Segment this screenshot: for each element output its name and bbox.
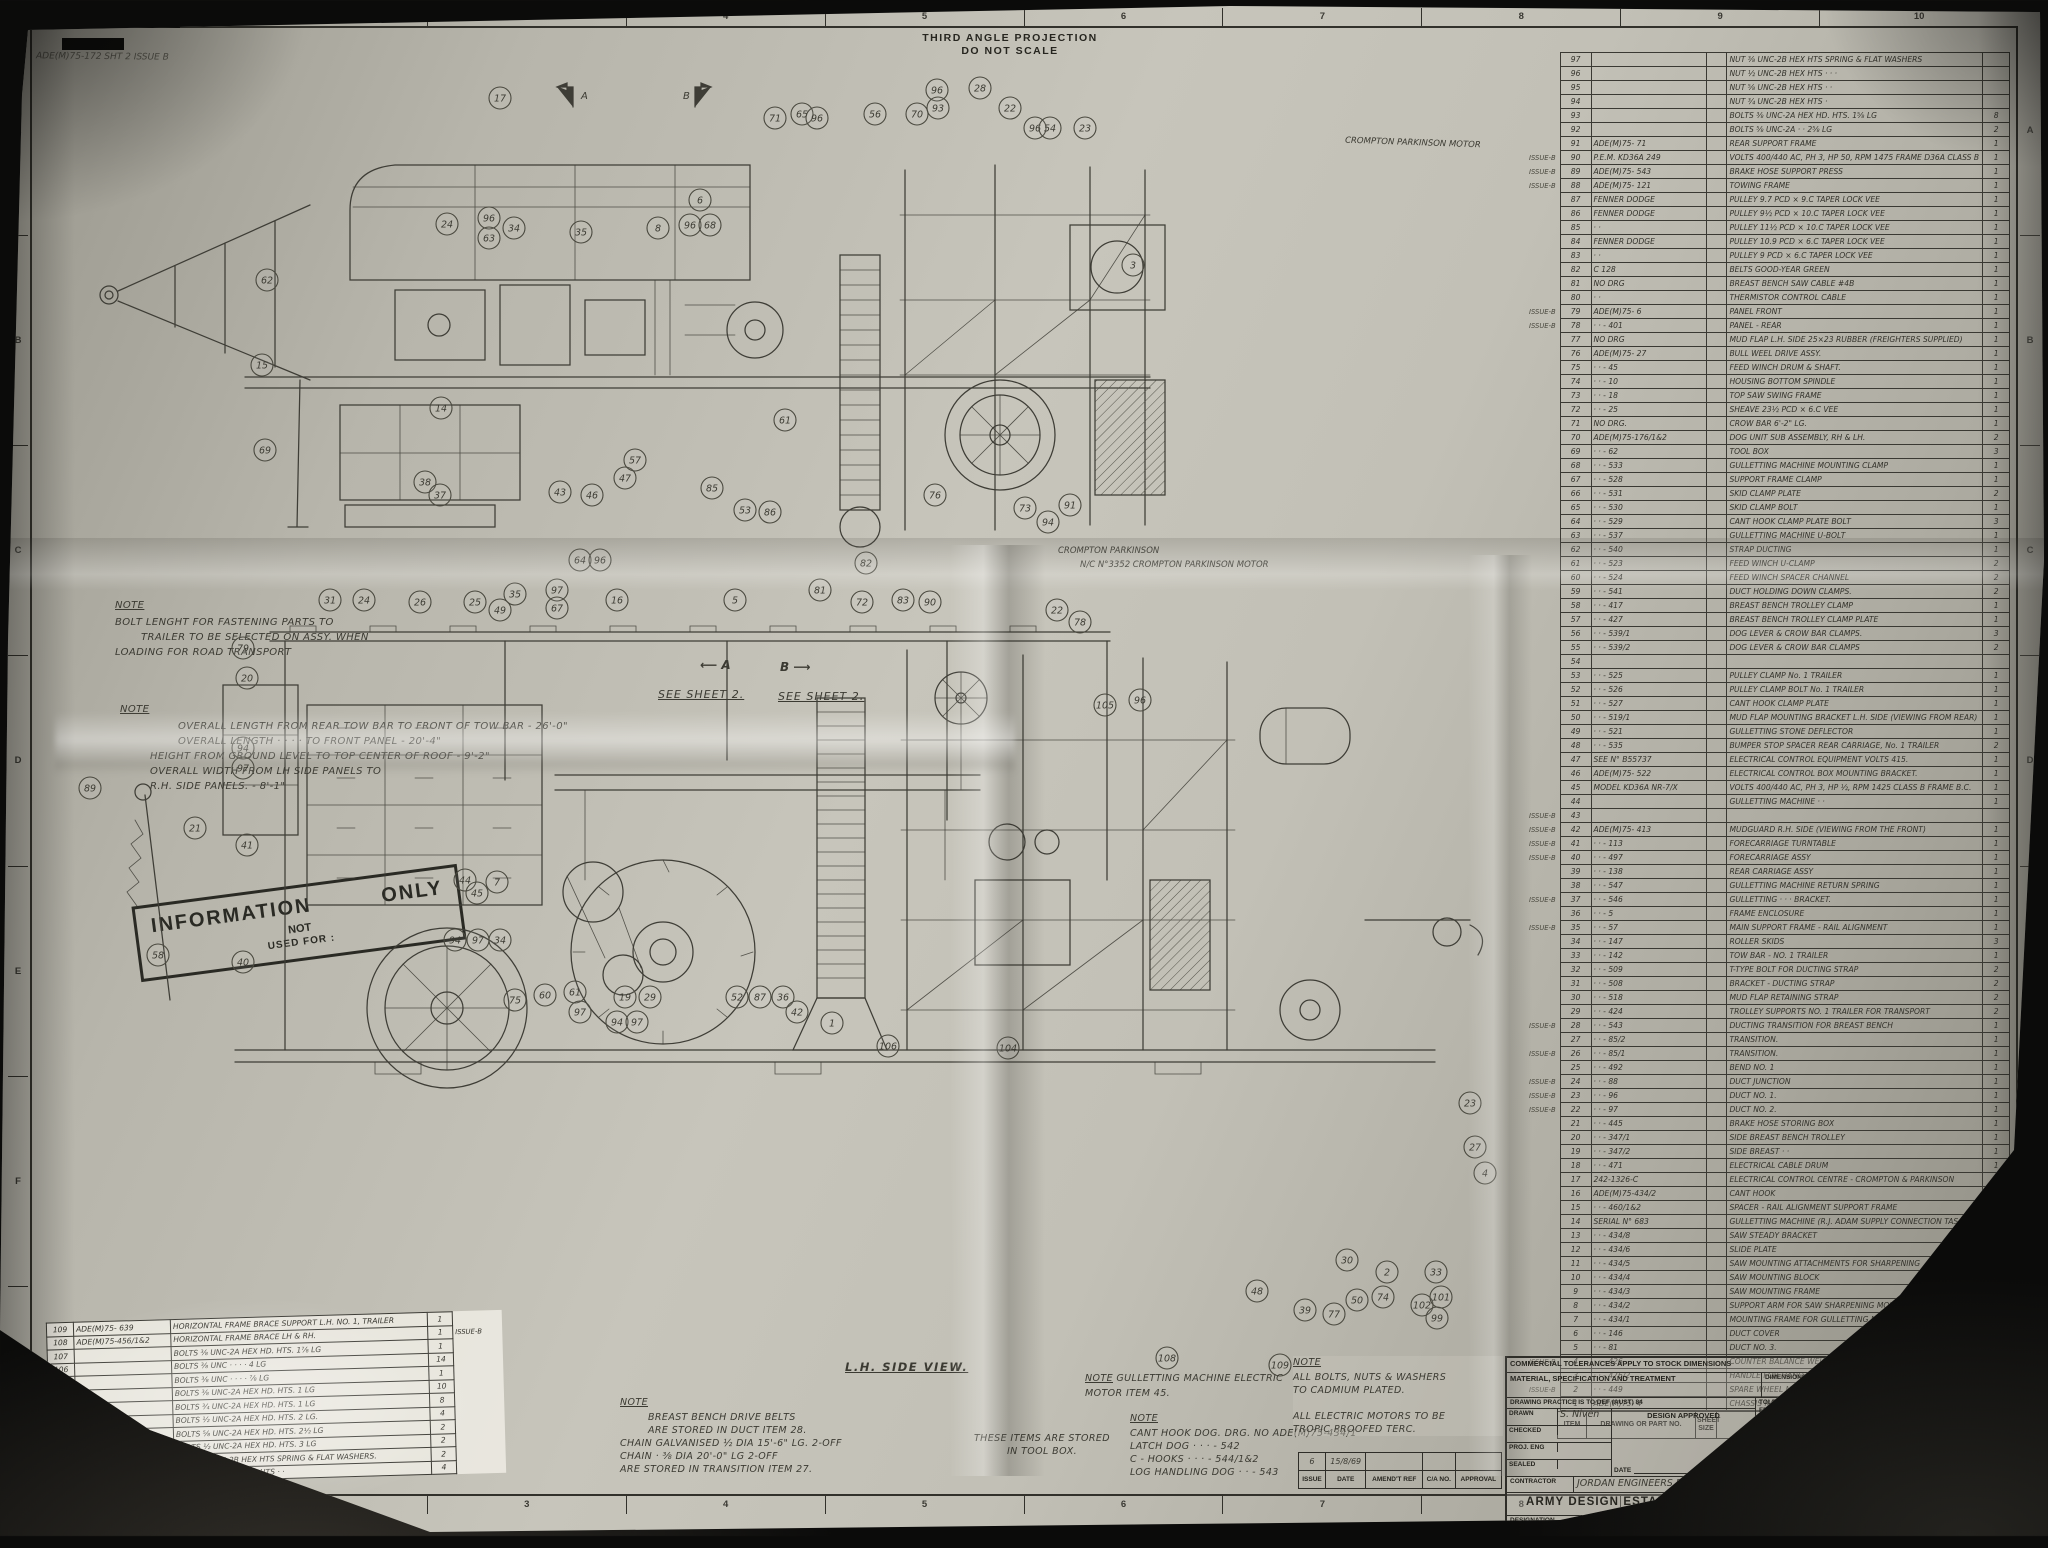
callout-balloon-number: 46	[586, 490, 598, 501]
parts-row: 91ADE(M)75- 71REAR SUPPORT FRAME1	[1505, 137, 2010, 151]
material-spec-label: MATERIAL, SPECIFICATION AND TREATMENT	[1507, 1373, 1761, 1397]
parts-row: ISSUE-B79ADE(M)75- 6PANEL FRONT1	[1505, 305, 2010, 319]
border-coordinate-label: C	[8, 445, 28, 655]
border-coordinate-label: D	[8, 655, 28, 865]
callout-balloon-number: 67	[551, 603, 563, 614]
parts-row: 13· · - 434/8SAW STEADY BRACKET1	[1505, 1229, 2010, 1243]
parts-list-continuation: 109ADE(M)75- 639HORIZONTAL FRAME BRACE S…	[46, 1309, 520, 1485]
parts-row: 62· · - 540STRAP DUCTING1	[1505, 543, 2010, 557]
border-coordinate-label: 10	[1819, 8, 2018, 26]
parts-row: 57· · - 427BREAST BENCH TROLLEY CLAMP PL…	[1505, 613, 2010, 627]
border-coordinate-label: 10	[1819, 1496, 2018, 1514]
callout-balloon-number: 71	[769, 113, 781, 124]
border-coordinate-label: 5	[825, 1496, 1024, 1514]
callout-balloon-number: 63	[483, 233, 495, 244]
proj-eng-label: PROJ. ENG	[1507, 1443, 1558, 1453]
crompton-parkinson-label: CROMPTON PARKINSON	[1058, 546, 1159, 556]
border-coordinate-label: 3	[427, 8, 626, 26]
parts-row: ISSUE-B89ADE(M)75- 543BRAKE HOSE SUPPORT…	[1505, 165, 2010, 179]
callout-balloon-number: 53	[739, 505, 751, 516]
parts-row: 74· · - 10HOUSING BOTTOM SPINDLE1	[1505, 375, 2010, 389]
parts-row: 25· · - 492BEND NO. 11	[1505, 1061, 2010, 1075]
drawing-no-label: DRAWING NO.	[1828, 1517, 2009, 1525]
callout-balloon-number: 101	[1432, 1292, 1450, 1303]
parts-row: 21· · - 445BRAKE HOSE STORING BOX1	[1505, 1117, 2010, 1131]
callout-balloon-number: 74	[1377, 1292, 1389, 1303]
callout-balloon-number: 108	[1158, 1353, 1176, 1364]
parts-row: 55· · - 539/2DOG LEVER & CROW BAR CLAMPS…	[1505, 641, 2010, 655]
parts-row: 6· · - 146DUCT COVER1	[1505, 1327, 2010, 1341]
border-ruler-bottom: 12345678910	[30, 1496, 2018, 1514]
parts-row: 54	[1505, 655, 2010, 669]
callout-balloon-number: 99	[1431, 1313, 1443, 1324]
callout-balloon-number: 30	[1341, 1255, 1353, 1266]
parts-row: 51· · - 527CANT HOOK CLAMP PLATE1	[1505, 697, 2010, 711]
parts-row: 34· · - 147ROLLER SKIDS3	[1505, 935, 2010, 949]
callout-balloon-number: 96	[1134, 695, 1146, 706]
callout-balloon-number: 43	[554, 487, 566, 498]
parts-row: 80· ·THERMISTOR CONTROL CABLE1	[1505, 291, 2010, 305]
callout-balloon-number: 97	[237, 763, 249, 774]
contractor-label: CONTRACTOR	[1507, 1477, 1573, 1492]
parts-list-table: 97NUT ⅜ UNC-2B HEX HTS SPRING & FLAT WAS…	[1505, 52, 2010, 1411]
parts-row: 36· · - 5FRAME ENCLOSURE1	[1505, 907, 2010, 921]
sealed-label: SEALED	[1507, 1460, 1558, 1470]
est-wt-label: EST. WT.	[1921, 1409, 2012, 1420]
callout-balloon-number: 97	[551, 585, 563, 596]
callout-balloon-number: 21	[189, 823, 201, 834]
callout-balloon-number: 91	[1064, 500, 1076, 511]
callout-balloon-number: 79	[237, 643, 249, 654]
callout-balloon-number: 35	[575, 227, 587, 238]
parts-row: 38· · - 547GULLETTING MACHINE RETURN SPR…	[1505, 879, 2010, 893]
lower-view-callout-balloons: 3124262549359767165817283902278792010596…	[79, 579, 1496, 1376]
callout-balloon-number: 39	[1299, 1305, 1311, 1316]
parts-row: 92BOLTS ⅝ UNC-2A · · 2⅝ LG2	[1505, 123, 2010, 137]
border-coordinate-label: G	[8, 1286, 28, 1496]
callout-balloon-number: 26	[414, 597, 426, 608]
border-coordinate-label: A	[8, 26, 28, 235]
border-coordinate-label: 4	[626, 1496, 825, 1514]
callout-balloon-number: 15	[256, 360, 268, 371]
callout-balloon-number: 105	[1096, 700, 1114, 711]
parts-row: 18· · - 471ELECTRICAL CABLE DRUM1	[1505, 1159, 2010, 1173]
parts-row: ISSUE-B41· · - 113FORECARRIAGE TURNTABLE…	[1505, 837, 2010, 851]
parts-row: ISSUE-B40· · - 497FORECARRIAGE ASSY1	[1505, 851, 2010, 865]
note-cadmium-plating: NOTE ALL BOLTS, NUTS & WASHERS TO CADMIU…	[1293, 1356, 1503, 1436]
callout-balloon-number: 64	[574, 555, 586, 566]
border-coordinate-label: 5	[825, 8, 1024, 26]
callout-balloon-number: 1	[829, 1018, 835, 1029]
callout-balloon-number: 57	[629, 455, 641, 466]
issue-strip-headers: ISSUE DATE AMEND'T REF C/A NO. APPROVAL	[1299, 1471, 1502, 1489]
border-coordinate-label: 7	[1222, 8, 1421, 26]
parts-row: 56· · - 539/1DOG LEVER & CROW BAR CLAMPS…	[1505, 627, 2010, 641]
border-rail-left: ABCDEFG	[8, 26, 28, 1496]
tolerances-title: TOLERANCES UNLESS OTHERWISE STATED	[1759, 1399, 1917, 1407]
parts-row: ISSUE-B24· · - 88DUCT JUNCTION1	[1505, 1075, 2010, 1089]
callout-balloon-number: 29	[644, 992, 656, 1003]
callout-balloon-number: 27	[1469, 1142, 1481, 1153]
parts-row: 77NO DRGMUD FLAP L.H. SIDE 25×23 RUBBER …	[1505, 333, 2010, 347]
design-approved-label: DESIGN APPROVED	[1614, 1411, 1753, 1420]
callout-balloon-number: 96	[811, 113, 823, 124]
parts-list-continuation-table: 109ADE(M)75- 639HORIZONTAL FRAME BRACE S…	[46, 1310, 506, 1486]
section-marker-b-top: B	[683, 91, 690, 102]
parts-row: 66· · - 531SKID CLAMP PLATE2	[1505, 487, 2010, 501]
section-marker-a-top: A	[580, 91, 588, 102]
callout-balloon-number: 94	[1042, 517, 1054, 528]
callout-balloon-number: 90	[924, 597, 936, 608]
callout-balloon-number: 22	[1004, 103, 1016, 114]
parts-row: 69· · - 62TOOL BOX3	[1505, 445, 2010, 459]
callout-balloon-number: 70	[911, 109, 923, 120]
callout-balloon-number: 47	[619, 473, 631, 484]
tolerance-fractional: FRACTIONAL ±	[1759, 1407, 1917, 1415]
callout-balloon-number: 83	[897, 595, 909, 606]
border-coordinate-label: 8	[1421, 8, 1620, 26]
callout-balloon-number: 28	[974, 83, 986, 94]
parts-row: 76ADE(M)75- 27BULL WEEL DRIVE ASSY.1	[1505, 347, 2010, 361]
border-coordinate-label: E	[8, 866, 28, 1076]
border-coordinate-label: 1	[30, 1496, 228, 1514]
parts-row: 82C 128BELTS GOOD-YEAR GREEN1	[1505, 263, 2010, 277]
sheet-box-nos: NOS.	[1975, 1504, 2009, 1512]
issue-strip: 6 15/8/69 ISSUE DATE AMEND'T REF C/A NO.…	[1298, 1452, 1502, 1489]
sheet-box-number: 2	[1975, 1494, 2009, 1504]
parts-row: 67· · - 528SUPPORT FRAME CLAMP1	[1505, 473, 2010, 487]
callout-balloon-number: 94	[449, 935, 461, 946]
callout-balloon-number: 4	[1482, 1168, 1488, 1179]
callout-balloon-number: 34	[508, 223, 520, 234]
border-rail-right: ABCDEFG	[2020, 26, 2040, 1496]
organisation-banner: ARMY DESIGN ESTABLISHMENT, AUSTRALIAN MI…	[1507, 1493, 1971, 1511]
callout-balloon-number: 16	[611, 595, 623, 606]
parts-row: 72· · - 25SHEAVE 23½ PCD × 6.C VEE1	[1505, 403, 2010, 417]
tolerance-2place: 2 PLACE DECIMALS ±	[1759, 1422, 1917, 1430]
callout-balloon-number: 96	[684, 220, 696, 231]
callout-balloon-number: 87	[754, 992, 766, 1003]
parts-row: 46ADE(M)75- 522ELECTRICAL CONTROL BOX MO…	[1505, 767, 2010, 781]
border-coordinate-label: C	[2020, 445, 2040, 655]
callout-balloon-number: 106	[879, 1041, 897, 1052]
border-coordinate-label: 9	[1620, 8, 1819, 26]
border-coordinate-label: E	[2020, 866, 2040, 1076]
parts-row: 47SEE N° B55737ELECTRICAL CONTROL EQUIPM…	[1505, 753, 2010, 767]
border-coordinate-label: 2	[228, 1496, 427, 1514]
parts-row: 94NUT ¾ UNC-2B HEX HTS ·	[1505, 95, 2010, 109]
parts-row: 65· · - 530SKID CLAMP BOLT1	[1505, 501, 2010, 515]
drawing-no-value: ADE(M)75-172 SHT 1	[1828, 1525, 2009, 1536]
callout-balloon-number: 69	[259, 445, 271, 456]
callout-balloon-number: 89	[84, 783, 96, 794]
parts-row: 85· ·PULLEY 11½ PCD × 10.C TAPER LOCK VE…	[1505, 221, 2010, 235]
callout-balloon-number: 78	[1074, 617, 1086, 628]
lh-side-view-label: L.H. SIDE VIEW.	[845, 1360, 968, 1374]
callout-balloon-number: 61	[569, 987, 581, 998]
projection-note-line2: DO NOT SCALE	[890, 45, 1130, 58]
tolerance-3place: 3 PLACE DECIMALS ±	[1759, 1429, 1917, 1437]
parts-row: 63· · - 537GULLETTING MACHINE U-BOLT1	[1505, 529, 2010, 543]
callout-balloon-number: 96	[931, 85, 943, 96]
checked-label: CHECKED	[1507, 1426, 1558, 1436]
parts-row: 32· · - 509T-TYPE BOLT FOR DUCTING STRAP…	[1505, 963, 2010, 977]
callout-balloon-number: 62	[261, 275, 273, 286]
callout-balloon-number: 97	[472, 935, 484, 946]
parts-row: 83· ·PULLEY 9 PCD × 6.C TAPER LOCK VEE1	[1505, 249, 2010, 263]
callout-balloon-number: 97	[574, 1007, 586, 1018]
callout-balloon-number: 58	[152, 950, 164, 961]
border-coordinate-label: 2	[228, 8, 427, 26]
parts-row: 84FENNER DODGEPULLEY 10.9 PCD × 6.C TAPE…	[1505, 235, 2010, 249]
border-coordinate-label: B	[2020, 235, 2040, 445]
callout-balloon-number: 2	[1384, 1267, 1390, 1278]
parts-row: 81NO DRGBREAST BENCH SAW CABLE #4B1	[1505, 277, 2010, 291]
callout-balloon-number: 56	[869, 109, 881, 120]
callout-balloon-number: 37	[434, 490, 446, 501]
parts-row: 48· · - 535BUMPER STOP SPACER REAR CARRI…	[1505, 739, 2010, 753]
parts-row: 59· · - 541DUCT HOLDING DOWN CLAMPS.2	[1505, 585, 2010, 599]
callout-balloon-number: 45	[471, 888, 483, 899]
parts-row: 15· · - 460/1&2SPACER - RAIL ALIGNMENT S…	[1505, 1201, 2010, 1215]
parts-row: ISSUE-B88ADE(M)75- 121TOWING FRAME1	[1505, 179, 2010, 193]
note-gulletting-motor: NOTE GULLETTING MACHINE ELECTRIC MOTOR I…	[1085, 1372, 1325, 1400]
border-coordinate-label: 6	[1024, 1496, 1223, 1514]
projection-note: THIRD ANGLE PROJECTION DO NOT SCALE	[890, 32, 1130, 58]
callout-balloon-number: 24	[358, 595, 370, 606]
parts-row: 39· · - 138REAR CARRIAGE ASSY1	[1505, 865, 2010, 879]
callout-balloon-number: 6	[697, 195, 703, 206]
border-coordinate-label: 7	[1222, 1496, 1421, 1514]
callout-balloon-number: 31	[324, 595, 336, 606]
parts-row: 44GULLETTING MACHINE · ·1	[1505, 795, 2010, 809]
parts-row: 17242-1326-CELECTRICAL CONTROL CENTRE - …	[1505, 1173, 2010, 1187]
parts-row: 5· · - 81DUCT NO. 3.1	[1505, 1341, 2010, 1355]
border-coordinate-label: 6	[1024, 8, 1223, 26]
parts-row: 71NO DRG.CROW BAR 6'-2" LG.1	[1505, 417, 2010, 431]
parts-row: 20· · - 347/1SIDE BREAST BENCH TROLLEY1	[1505, 1131, 2010, 1145]
callout-balloon-number: 50	[1351, 1295, 1363, 1306]
callout-balloon-number: 96	[594, 555, 606, 566]
callout-balloon-number: 82	[860, 558, 872, 569]
parts-row: 96NUT ½ UNC-2B HEX HTS · · ·	[1505, 67, 2010, 81]
parts-row: 53· · - 525PULLEY CLAMP No. 1 TRAILER1	[1505, 669, 2010, 683]
callout-balloon-number: 24	[441, 219, 453, 230]
border-coordinate-label: G	[2020, 1286, 2040, 1496]
parts-row: 27· · - 85/2TRANSITION.1	[1505, 1033, 2010, 1047]
border-coordinate-label: B	[8, 235, 28, 445]
drawn-label: DRAWN	[1507, 1409, 1558, 1425]
parts-row: 49· · - 521GULLETTING STONE DEFLECTOR1	[1505, 725, 2010, 739]
callout-balloon-number: 102	[1413, 1300, 1431, 1311]
callout-balloon-number: 3	[1130, 260, 1136, 271]
callout-balloon-number: 42	[791, 1007, 803, 1018]
callout-balloon-number: 23	[1079, 123, 1091, 134]
border-coordinate-label: D	[2020, 655, 2040, 865]
parts-row: 60· · - 524FEED WINCH SPACER CHANNEL2	[1505, 571, 2010, 585]
designation-label: DESIGNATION	[1510, 1517, 1768, 1525]
parts-row: 70ADE(M)75-176/1&2DOG UNIT SUB ASSEMBLY,…	[1505, 431, 2010, 445]
drawing-practice-note: DRAWING PRACTICE IS TO DEF (AUST) 84	[1507, 1398, 1755, 1409]
parts-row: 10· · - 434/4SAW MOUNTING BLOCK1	[1505, 1271, 2010, 1285]
parts-row: ISSUE-B90P.E.M. KD36A 249VOLTS 400/440 A…	[1505, 151, 2010, 165]
parts-row: 68· · - 533GULLETTING MACHINE MOUNTING C…	[1505, 459, 2010, 473]
callout-balloon-number: 104	[999, 1043, 1017, 1054]
parts-row: 12· · - 434/6SLIDE PLATE1	[1505, 1243, 2010, 1257]
parts-row: 33· · - 142TOW BAR - NO. 1 TRAILER1	[1505, 949, 2010, 963]
nc-motor-number-label: N/C N°3352 CROMPTON PARKINSON MOTOR	[1080, 560, 1269, 570]
callout-balloon-number: 25	[469, 597, 481, 608]
parts-row: 73· · - 18TOP SAW SWING FRAME1	[1505, 389, 2010, 403]
parts-row: ISSUE-B22· · - 97DUCT NO. 2.1	[1505, 1103, 2010, 1117]
parts-row: 97NUT ⅜ UNC-2B HEX HTS SPRING & FLAT WAS…	[1505, 53, 2010, 67]
parts-list: 97NUT ⅜ UNC-2B HEX HTS SPRING & FLAT WAS…	[1505, 52, 2010, 1439]
parts-row: 31· · - 508BRACKET - DUCTING STRAP2	[1505, 977, 2010, 991]
callout-balloon-number: 17	[494, 93, 506, 104]
parts-row: ISSUE-B43	[1505, 809, 2010, 823]
callout-balloon-number: 35	[509, 589, 521, 600]
callout-balloon-number: 38	[419, 477, 431, 488]
callout-balloon-number: 20	[241, 673, 253, 684]
border-ruler-top: 12345678910	[30, 8, 2018, 26]
border-coordinate-label: A	[2020, 26, 2040, 235]
callout-balloon-number: 23	[1464, 1098, 1476, 1109]
parts-row: 19· · - 347/2SIDE BREAST · ·1	[1505, 1145, 2010, 1159]
parts-row: 50· · - 519/1MUD FLAP MOUNTING BRACKET L…	[1505, 711, 2010, 725]
callout-balloon-number: 72	[856, 597, 868, 608]
callout-balloon-number: 33	[1430, 1267, 1442, 1278]
parts-row: 86FENNER DODGEPULLEY 9½ PCD × 10.C TAPER…	[1505, 207, 2010, 221]
callout-balloon-number: 77	[1328, 1309, 1340, 1320]
callout-balloon-number: 94	[611, 1017, 623, 1028]
callout-balloon-number: 54	[1044, 123, 1056, 134]
parts-row: 95NUT ⅝ UNC-2B HEX HTS · ·	[1505, 81, 2010, 95]
parts-row: 52· · - 526PULLEY CLAMP BOLT No. 1 TRAIL…	[1505, 683, 2010, 697]
parts-row: 45MODEL KD36A NR-7/XVOLTS 400/440 AC, PH…	[1505, 781, 2010, 795]
callout-balloon-number: 14	[435, 403, 447, 414]
issue-strip-values: 6 15/8/69	[1299, 1453, 1502, 1471]
parts-row: 61· · - 523FEED WINCH U-CLAMP2	[1505, 557, 2010, 571]
title-block: COMMERCIAL TOLERANCES APPLY TO STOCK DIM…	[1505, 1356, 2014, 1548]
parts-row: 75· · - 45FEED WINCH DRUM & SHAFT.1	[1505, 361, 2010, 375]
dp-no-label: D.P. NO.	[1921, 1398, 2012, 1409]
callout-balloon-number: 73	[1019, 503, 1031, 514]
tolerance-angular: ANGULAR ±	[1759, 1414, 1917, 1422]
parts-row: 93BOLTS ⅜ UNC-2A HEX HD. HTS. 1⅝ LG8	[1505, 109, 2010, 123]
parts-row: ISSUE-B23· · - 96DUCT NO. 1.1	[1505, 1089, 2010, 1103]
callout-balloon-number: 75	[509, 995, 521, 1006]
commercial-tolerances-note: COMMERCIAL TOLERANCES APPLY TO STOCK DIM…	[1507, 1358, 2012, 1372]
date-label: DATE	[1614, 1467, 1631, 1475]
border-coordinate-label: F	[2020, 1076, 2040, 1286]
callout-balloon-number: 34	[494, 935, 506, 946]
callout-balloon-number: 40	[237, 957, 249, 968]
callout-balloon-number: 49	[494, 605, 506, 616]
parts-row: 16ADE(M)75-434/2CANT HOOK2	[1505, 1187, 2010, 1201]
contractor-value: JORDAN ENGINEERS PTY. LTD. HOBART TAS.	[1573, 1477, 2012, 1492]
callout-balloon-number: 76	[929, 490, 941, 501]
parts-row: 8· · - 434/2SUPPORT ARM FOR SAW SHARPENI…	[1505, 1299, 2010, 1313]
defence-stock-no-label: DEFENCE STOCK NO.	[1926, 1373, 2012, 1397]
scale-value: 1/12	[1775, 1525, 1821, 1536]
callout-balloon-number: 5	[732, 595, 738, 606]
callout-balloon-number: 81	[814, 585, 826, 596]
parts-row: ISSUE-B78· · - 401PANEL - REAR1	[1505, 319, 2010, 333]
callout-balloon-number: 96	[483, 213, 495, 224]
callout-balloon-number: 41	[241, 840, 253, 851]
callout-balloon-number: 36	[777, 992, 789, 1003]
parts-row: ISSUE-B26· · - 85/1TRANSITION.1	[1505, 1047, 2010, 1061]
callout-balloon-number: 109	[1271, 1360, 1289, 1371]
contractors-dwg-no-label: CONTRACTOR'S DWG. NO.	[1921, 1419, 2012, 1476]
for-cgm-label: for CGM	[1727, 1467, 1753, 1475]
parts-row: ISSUE-B35· · - 57MAIN SUPPORT FRAME - RA…	[1505, 921, 2010, 935]
callout-balloon-number: 8	[655, 223, 661, 234]
lower-trailer-side-view-drawing: 3124262549359767165817283902278792010596…	[75, 580, 1495, 1380]
projection-note-line1: THIRD ANGLE PROJECTION	[890, 32, 1130, 45]
parts-row: 7· · - 434/1MOUNTING FRAME FOR GULLETTIN…	[1505, 1313, 2010, 1327]
parts-row: 29· · - 424TROLLEY SUPPORTS NO. 1 TRAILE…	[1505, 1005, 2010, 1019]
callout-balloon-number: 22	[1051, 605, 1063, 616]
parts-row: ISSUE-B37· · - 546GULLETTING · · · BRACK…	[1505, 893, 2010, 907]
parts-row: 58· · - 417BREAST BENCH TROLLEY CLAMP1	[1505, 599, 2010, 613]
callout-balloon-number: 86	[764, 507, 776, 518]
note-tool-box: THESE ITEMS ARE STORED IN TOOL BOX.	[952, 1432, 1132, 1458]
corner-drawing-number: ADE(M)75-172 SHT 2 ISSUE B	[36, 51, 169, 62]
callout-balloon-number: 85	[706, 483, 718, 494]
parts-row: 64· · - 529CANT HOOK CLAMP PLATE BOLT3	[1505, 515, 2010, 529]
border-coordinate-label: 3	[427, 1496, 626, 1514]
scale-label: SCALE	[1775, 1517, 1821, 1525]
upper-trailer-side-view-drawing: A B 172496633435896686716596569693287022…	[95, 75, 1155, 575]
callout-balloon-number: 97	[631, 1017, 643, 1028]
callout-balloon-number: 60	[539, 990, 551, 1001]
border-coordinate-label: 4	[626, 8, 825, 26]
parts-row: ISSUE-B42ADE(M)75- 413MUDGUARD R.H. SIDE…	[1505, 823, 2010, 837]
callout-balloon-number: 93	[932, 103, 944, 114]
callout-balloon-number: 19	[619, 992, 631, 1003]
parts-row: 30· · - 518MUD FLAP RETAINING STRAP2	[1505, 991, 2010, 1005]
dimensions-note: DIMENSIONS ARE IN INCHES BEFORE PAINTING	[1761, 1373, 1926, 1397]
callout-balloon-number: 94	[237, 743, 249, 754]
callout-balloon-number: 52	[731, 992, 743, 1003]
callout-balloon-number: 61	[779, 415, 791, 426]
drawn-value: S. Niven	[1558, 1409, 1611, 1425]
border-coordinate-label: 1	[30, 8, 228, 26]
callout-balloon-number: 7	[494, 877, 500, 888]
parts-row: 14SERIAL N° 683GULLETTING MACHINE (R.J. …	[1505, 1215, 2010, 1229]
callout-balloon-number: 48	[1251, 1286, 1263, 1297]
drawing-sheet-paper: 12345678910 12345678910 ABCDEFG ABCDEFG …	[0, 0, 2048, 1536]
callout-balloon-number: 68	[704, 220, 716, 231]
parts-row: ISSUE-B28· · - 543DUCTING TRANSITION FOR…	[1505, 1019, 2010, 1033]
note-stored-items: NOTE BREAST BENCH DRIVE BELTS ARE STORED…	[620, 1396, 960, 1476]
parts-row: 9· · - 434/3SAW MOUNTING FRAME1	[1505, 1285, 2010, 1299]
photo-of-engineering-drawing: { "sheet": { "projection_line1": "THIRD …	[0, 0, 2048, 1536]
parts-row: 11· · - 434/5SAW MOUNTING ATTACHMENTS FO…	[1505, 1257, 2010, 1271]
border-coordinate-label: F	[8, 1076, 28, 1286]
parts-row: 87FENNER DODGEPULLEY 9.7 PCD × 9.C TAPER…	[1505, 193, 2010, 207]
